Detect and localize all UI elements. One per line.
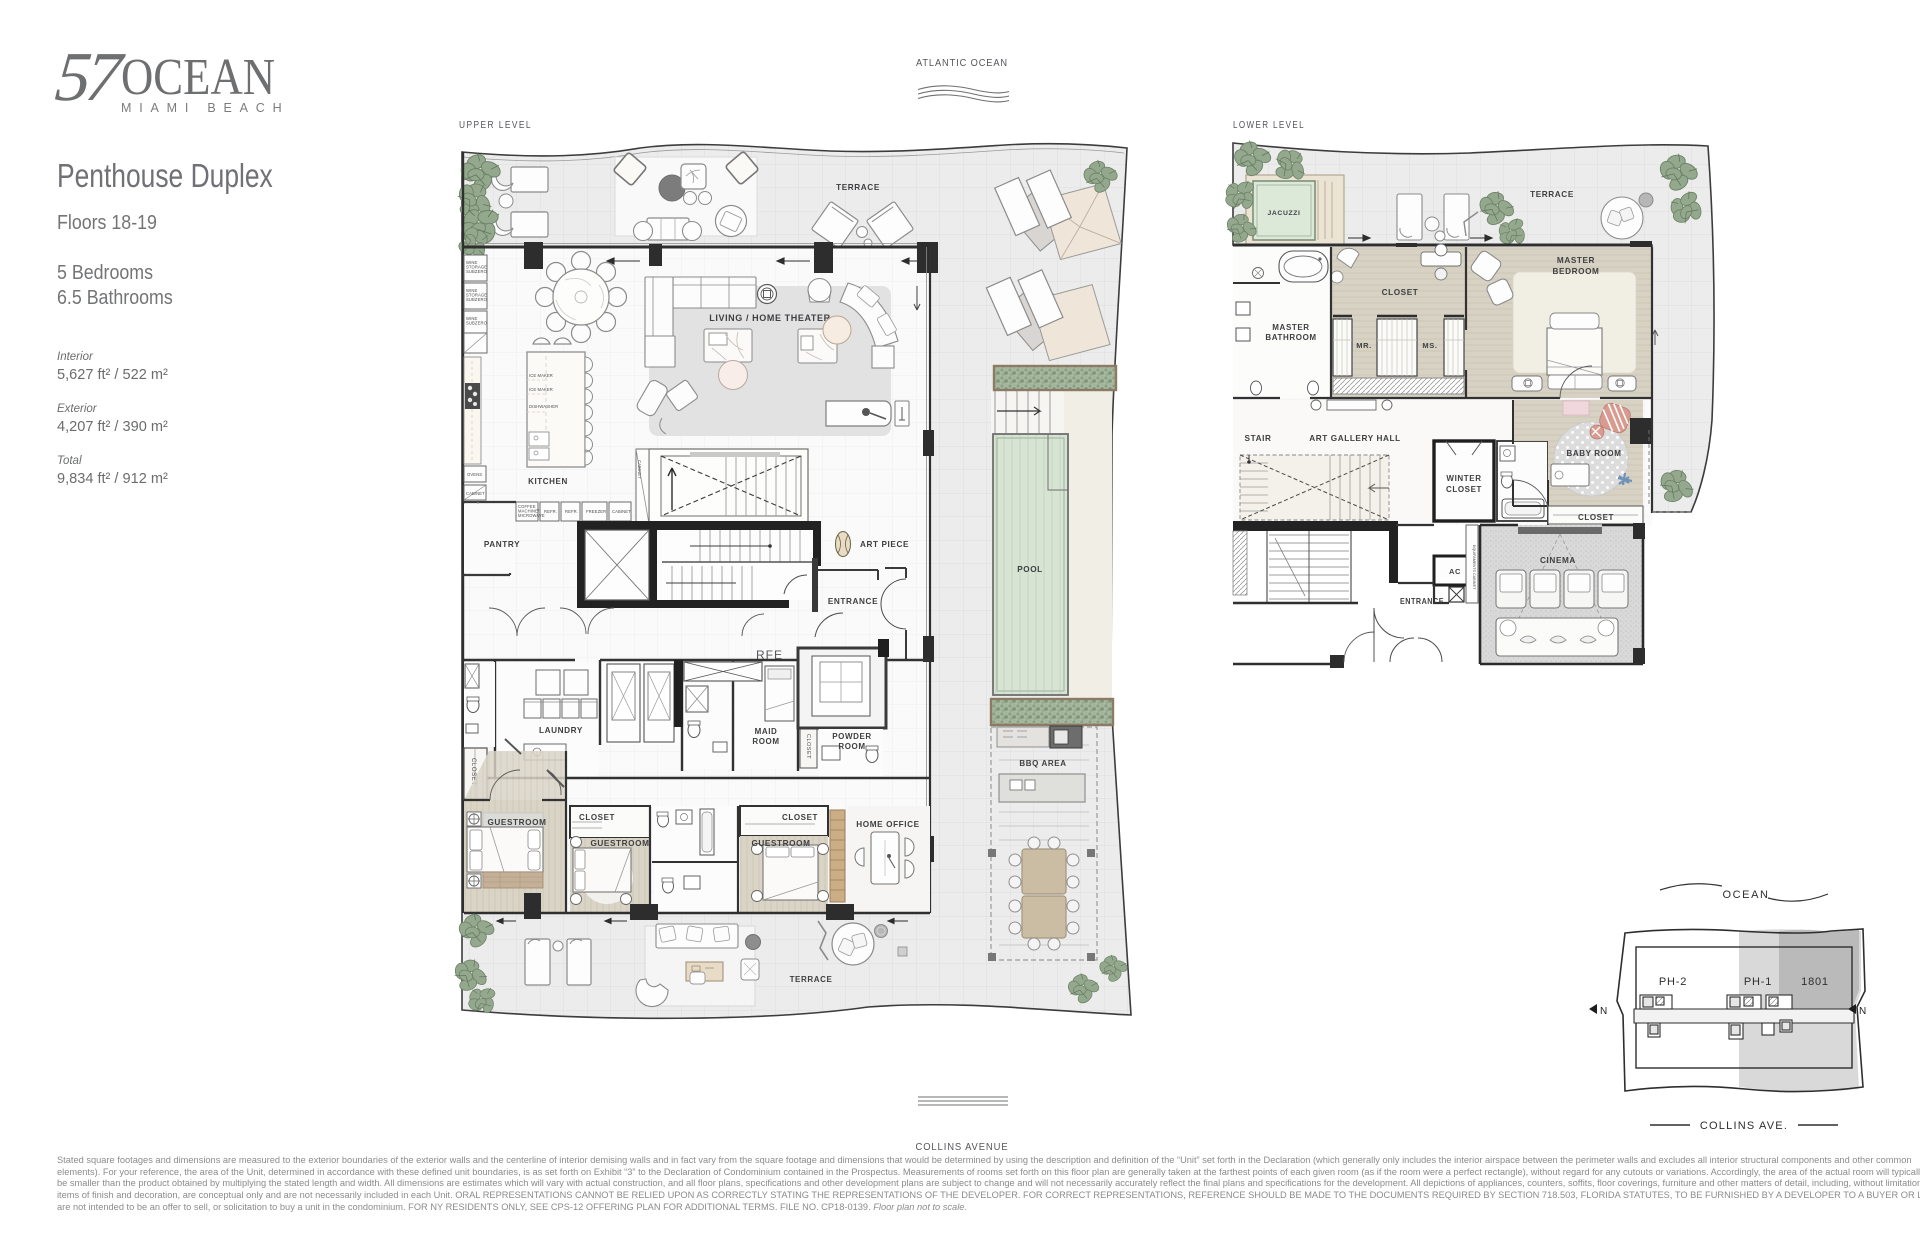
svg-text:MICROWAVE: MICROWAVE [518, 513, 545, 518]
svg-text:STAIR: STAIR [1245, 434, 1272, 443]
svg-text:BBQ AREA: BBQ AREA [1019, 759, 1066, 768]
svg-text:ICE MAKER: ICE MAKER [529, 387, 553, 392]
svg-text:LOWER LEVEL: LOWER LEVEL [1233, 119, 1305, 131]
svg-text:TERRACE: TERRACE [790, 975, 833, 984]
svg-text:JACUZZI: JACUZZI [1268, 210, 1301, 217]
svg-text:OCEAN: OCEAN [1722, 889, 1769, 901]
svg-text:KITCHEN: KITCHEN [528, 477, 568, 486]
svg-text:ENTRANCE: ENTRANCE [828, 597, 878, 606]
svg-text:COLLINS AVENUE: COLLINS AVENUE [916, 1141, 1009, 1153]
svg-text:SUBZERO: SUBZERO [466, 297, 488, 302]
svg-text:BEDROOM: BEDROOM [1553, 267, 1600, 276]
svg-text:UPPER LEVEL: UPPER LEVEL [459, 119, 532, 131]
svg-text:COLLINS AVE.: COLLINS AVE. [1700, 1120, 1788, 1132]
svg-text:ENTRANCE: ENTRANCE [1400, 597, 1444, 606]
svg-text:MASTER: MASTER [1272, 323, 1309, 332]
svg-text:CLOSET: CLOSET [782, 813, 818, 822]
svg-text:CABINET: CABINET [612, 509, 631, 514]
svg-text:GUESTROOM: GUESTROOM [590, 839, 649, 848]
svg-text:EQUIPAMENTS CABINET: EQUIPAMENTS CABINET [1472, 545, 1476, 590]
svg-text:SUBZERO: SUBZERO [466, 321, 488, 326]
svg-text:TERRACE: TERRACE [1530, 190, 1574, 199]
svg-text:PH-1: PH-1 [1744, 976, 1772, 988]
svg-text:CINEMA: CINEMA [1540, 556, 1576, 565]
svg-text:N: N [1859, 1006, 1867, 1017]
svg-text:MAID: MAID [755, 727, 778, 736]
svg-text:N: N [1600, 1006, 1608, 1017]
svg-text:CABINET: CABINET [466, 491, 485, 496]
svg-text:MR.: MR. [1356, 341, 1372, 350]
svg-text:LIVING / HOME THEATER: LIVING / HOME THEATER [709, 313, 830, 323]
svg-text:CLOSET: CLOSET [805, 734, 811, 759]
svg-text:PANTRY: PANTRY [484, 540, 520, 549]
svg-text:ICE MAKER: ICE MAKER [529, 373, 553, 378]
svg-text:POOL: POOL [1017, 565, 1043, 574]
svg-text:MASTER: MASTER [1557, 256, 1595, 265]
svg-text:CLOSET: CLOSET [1446, 485, 1482, 494]
svg-text:AC: AC [1449, 567, 1461, 576]
svg-text:WINTER: WINTER [1446, 474, 1481, 483]
svg-text:BATHROOM: BATHROOM [1265, 333, 1316, 342]
svg-text:BABY ROOM: BABY ROOM [1566, 449, 1621, 458]
svg-text:SUBZERO: SUBZERO [466, 269, 488, 274]
svg-text:MS.: MS. [1422, 341, 1437, 350]
svg-text:CLOSET: CLOSET [579, 813, 615, 822]
svg-text:PH-2: PH-2 [1659, 976, 1687, 988]
svg-text:CLOSET: CLOSET [1382, 288, 1419, 297]
svg-text:ROOM: ROOM [838, 742, 865, 751]
svg-text:DISHWASHER: DISHWASHER [529, 404, 558, 409]
svg-text:OVENS: OVENS [467, 472, 482, 477]
svg-text:ROOM: ROOM [752, 737, 779, 746]
svg-text:REFR.: REFR. [565, 509, 578, 514]
svg-text:POWDER: POWDER [832, 732, 872, 741]
svg-text:TERRACE: TERRACE [836, 183, 880, 192]
svg-text:ART PIECE: ART PIECE [860, 540, 909, 549]
svg-text:FREEZER: FREEZER [586, 509, 606, 514]
svg-text:GUESTROOM: GUESTROOM [751, 839, 810, 848]
svg-text:1801: 1801 [1801, 976, 1829, 988]
svg-text:ART GALLERY HALL: ART GALLERY HALL [1309, 434, 1400, 443]
svg-text:REFR.: REFR. [544, 509, 557, 514]
svg-text:GUESTROOM: GUESTROOM [487, 818, 546, 827]
svg-text:ATLANTIC OCEAN: ATLANTIC OCEAN [916, 57, 1008, 69]
svg-text:CLOSET: CLOSET [1578, 513, 1614, 522]
svg-text:HOME OFFICE: HOME OFFICE [856, 820, 919, 829]
svg-text:CABINET: CABINET [637, 460, 642, 479]
svg-text:LAUNDRY: LAUNDRY [539, 726, 583, 735]
